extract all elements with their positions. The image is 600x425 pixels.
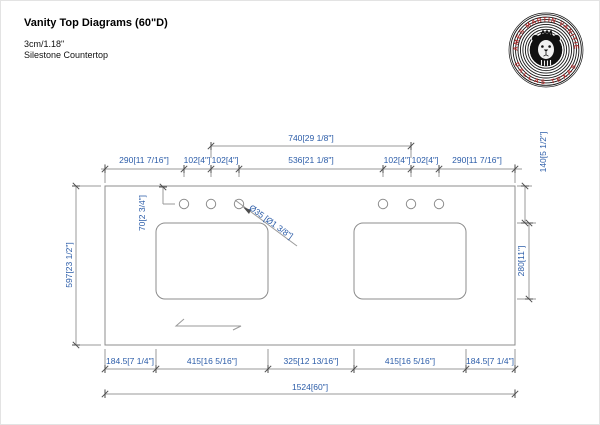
dim-overall-depth: 597[23 1/2"] [65,242,74,288]
dim-top-102-a: 102[4"] [184,156,211,165]
dim-top-left-290: 290[11 7/16"] [119,156,169,165]
dim-top-102-d: 102[4"] [412,156,439,165]
dim-top-102-c: 102[4"] [384,156,411,165]
dim-bottom-415-right: 415[16 5/16"] [385,357,435,366]
dim-overall-width: 1524[60"] [292,383,328,392]
dim-top-right-290: 290[11 7/16"] [452,156,502,165]
dim-back-to-cutout: 140[5 1/2"] [539,132,548,173]
faucet-hole [434,199,443,208]
faucet-hole [406,199,415,208]
faucet-hole [206,199,215,208]
dim-top-center-536: 536[21 1/8"] [288,156,334,165]
dim-bottom-415-left: 415[16 5/16"] [187,357,237,366]
dim-faucet-offset: 70[2 3/4"] [138,195,147,231]
spec-sheet-page: Vanity Top Diagrams (60"D) 3cm/1.18" Sil… [0,0,600,425]
countertop-outline [105,186,515,345]
faucet-hole [378,199,387,208]
dim-cutout-depth: 280[11"] [517,246,526,277]
dim-bottom-325-center: 325[12 13/16"] [283,357,338,366]
faucet-hole [179,199,188,208]
dim-top-102-b: 102[4"] [212,156,239,165]
dim-faucet-set-span: 740[29 1/8"] [288,134,334,143]
dim-bottom-184-right: 184.5[7 1/4"] [466,357,514,366]
dim-bottom-184-left: 184.5[7 1/4"] [106,357,154,366]
